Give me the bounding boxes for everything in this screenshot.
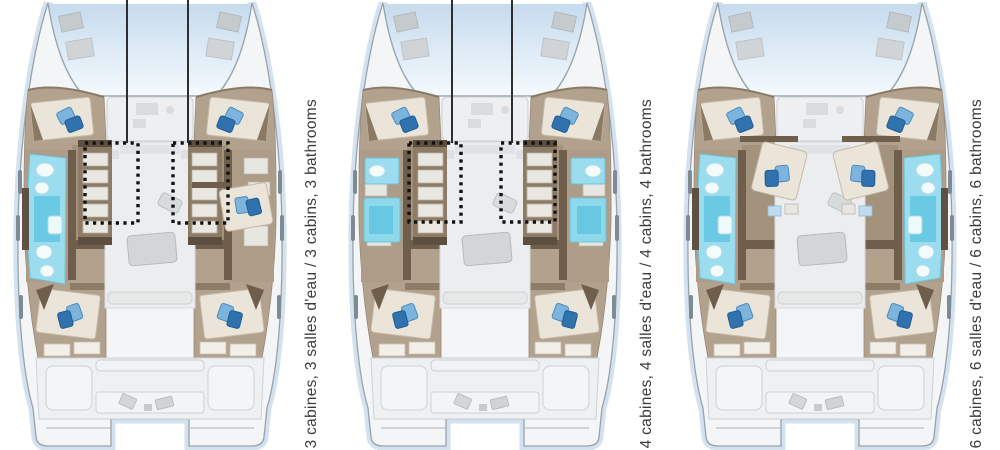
- salon: [440, 142, 530, 308]
- floorplan-section-6-cabins: 6 cabines, 6 salles d'eau / 6 cabins, 6 …: [670, 0, 1000, 450]
- floorplan-label-6-cabins: 6 cabines, 6 salles d'eau / 6 cabins, 6 …: [968, 99, 986, 448]
- catamaran-floorplan: [345, 0, 625, 450]
- foredeck: [777, 97, 863, 141]
- catamaran-floorplan: [680, 0, 960, 450]
- floorplan-3-cabins: [10, 0, 290, 450]
- floorplan-4-cabins: [345, 0, 625, 450]
- floorplan-section-4-cabins: 4 cabines, 4 salles d'eau / 4 cabins, 4 …: [335, 0, 670, 450]
- catamaran-floorplan: [10, 0, 290, 450]
- floorplan-label-3-cabins: 3 cabines, 3 salles d'eau / 3 cabins, 3 …: [303, 99, 321, 448]
- salon: [105, 142, 195, 308]
- cockpit: [371, 358, 599, 428]
- floorplan-label-4-cabins: 4 cabines, 4 salles d'eau / 4 cabins, 4 …: [638, 99, 656, 448]
- foredeck: [107, 97, 193, 141]
- catamaran-layouts-board: 3 cabines, 3 salles d'eau / 3 cabins, 3 …: [0, 0, 1000, 450]
- foredeck: [442, 97, 528, 141]
- cockpit: [706, 358, 934, 428]
- floorplan-6-cabins: [680, 0, 960, 450]
- floorplan-section-3-cabins: 3 cabines, 3 salles d'eau / 3 cabins, 3 …: [0, 0, 335, 450]
- cockpit: [36, 358, 264, 428]
